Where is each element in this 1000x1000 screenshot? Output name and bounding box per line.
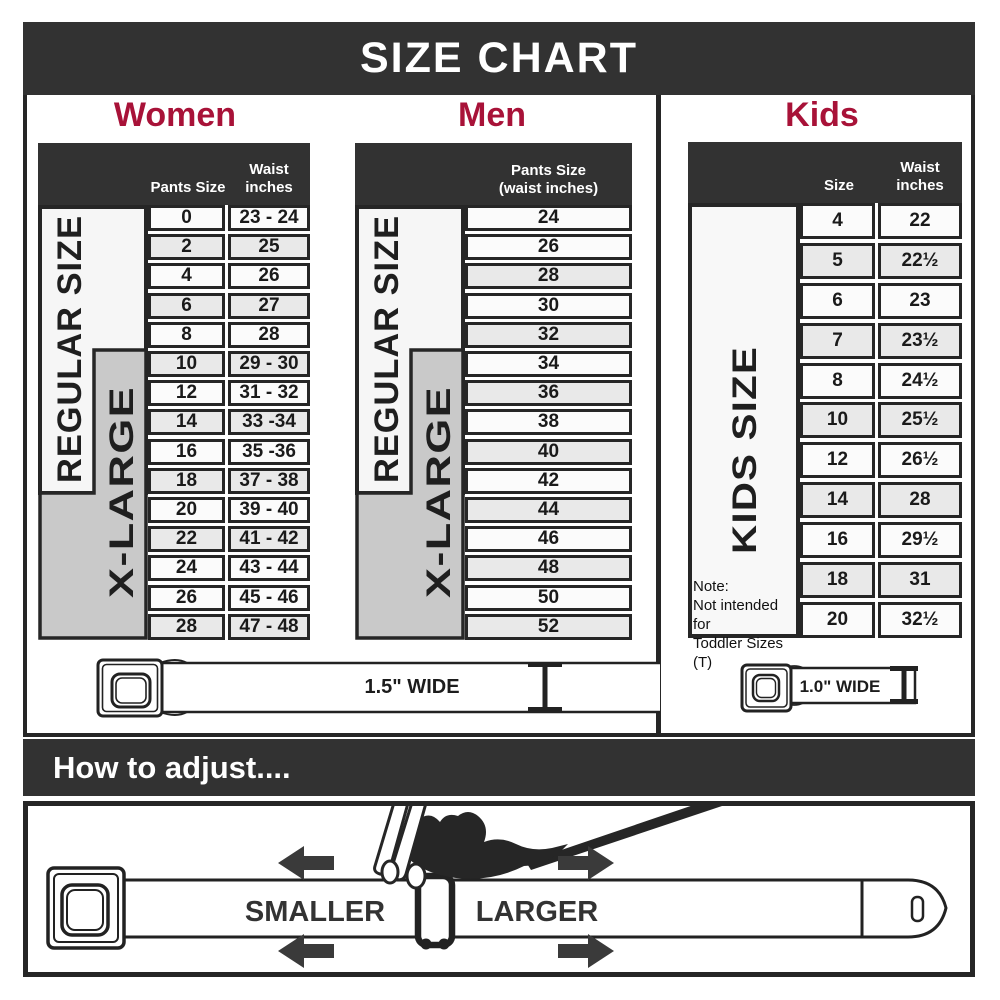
table-row: 225 [148,234,310,260]
table-cell: 0 [148,205,225,231]
men-header-line2: (waist inches) [465,180,632,199]
page-title: SIZE CHART [360,34,638,83]
table-cell: 22 [148,526,225,552]
table-cell: 40 [465,439,632,465]
men-heading: Men [392,96,592,135]
table-cell: 24 [148,555,225,581]
kids-size-label: KIDS SIZE [726,346,764,554]
table-cell: 26 [148,585,225,611]
table-cell: 35 -36 [228,439,310,465]
table-cell: 24½ [878,363,962,399]
table-cell: 20 [800,602,875,638]
table-row: 1025½ [800,402,962,438]
belt-adjuster-slider [418,876,452,950]
buckle-button-inner [757,679,776,698]
table-row: 52 [465,614,632,640]
table-cell: 34 [465,351,632,377]
table-cell: 38 [465,409,632,435]
table-row: 1433 -34 [148,409,310,435]
table-row: 1629½ [800,522,962,558]
table-row: 1635 -36 [148,439,310,465]
table-row: 44 [465,497,632,523]
table-cell: 14 [148,409,225,435]
waist-header-line1: Waist [228,161,310,180]
table-cell: 31 [878,562,962,598]
men-pants-size-column-header: Pants Size (waist inches) [465,162,632,200]
kids-size-table: 422522½623723½824½1025½1226½14281629½183… [800,203,962,638]
women-waist-column-header: Waist inches [228,161,310,199]
table-cell: 45 - 46 [228,585,310,611]
adult-belt-width-label: 1.5" WIDE [342,676,482,699]
table-row: 422 [800,203,962,239]
how-to-adjust-band: How to adjust.... [23,739,975,796]
larger-arrow-bottom [558,934,614,968]
table-cell: 8 [800,363,875,399]
table-cell: 12 [148,380,225,406]
table-row: 426 [148,263,310,289]
table-row: 623 [800,283,962,319]
table-cell: 26½ [878,442,962,478]
table-cell: 18 [800,562,875,598]
table-row: 30 [465,293,632,319]
kids-heading: Kids [722,96,922,135]
table-cell: 48 [465,555,632,581]
table-cell: 18 [148,468,225,494]
table-cell: 28 [148,614,225,640]
table-row: 32 [465,322,632,348]
buckle-button-inner [116,678,146,703]
belt-tip [862,880,946,937]
size-chart-poster: SIZE CHART Women Men Kids Pants Size Wai… [0,0,1000,1000]
table-cell: 29 - 30 [228,351,310,377]
table-row: 1837 - 38 [148,468,310,494]
men-table-header: Pants Size (waist inches) [355,143,632,205]
table-cell: 28 [228,322,310,348]
table-cell: 42 [465,468,632,494]
smaller-arrow-bottom [278,934,334,968]
table-cell: 44 [465,497,632,523]
table-cell: 4 [800,203,875,239]
table-row: 1226½ [800,442,962,478]
table-cell: 26 [465,234,632,260]
table-cell: 16 [148,439,225,465]
kids-size-column-header: Size [800,177,878,196]
larger-label: LARGER [462,896,612,929]
kids-belt-width-label: 1.0" WIDE [790,677,890,697]
table-cell: 22½ [878,243,962,279]
fingertip [407,864,425,888]
table-cell: 26 [228,263,310,289]
table-cell: 12 [800,442,875,478]
table-cell: 50 [465,585,632,611]
table-row: 2847 - 48 [148,614,310,640]
table-row: 1428 [800,482,962,518]
table-row: 50 [465,585,632,611]
table-cell: 5 [800,243,875,279]
table-row: 2645 - 46 [148,585,310,611]
table-cell: 52 [465,614,632,640]
women-regular-size-label: REGULAR SIZE [51,215,89,483]
women-size-range-graphic: REGULAR SIZE X-LARGE [38,205,148,640]
women-size-table: 023 - 242254266278281029 - 301231 - 3214… [148,205,310,640]
men-size-range-graphic: REGULAR SIZE X-LARGE [355,205,465,640]
table-cell: 24 [465,205,632,231]
table-cell: 32½ [878,602,962,638]
table-row: 2443 - 44 [148,555,310,581]
table-cell: 4 [148,263,225,289]
table-row: 2032½ [800,602,962,638]
table-cell: 2 [148,234,225,260]
women-heading: Women [75,96,275,135]
table-cell: 23 [878,283,962,319]
table-cell: 25½ [878,402,962,438]
men-kids-divider [656,95,661,735]
kids-waist-column-header: Waist inches [878,159,962,197]
table-cell: 46 [465,526,632,552]
waist-header-line1: Waist [878,159,962,178]
table-cell: 10 [800,402,875,438]
kids-note-line1: Not intended for [693,596,799,634]
fingertip [382,861,398,883]
table-cell: 14 [800,482,875,518]
table-row: 1831 [800,562,962,598]
table-row: 2241 - 42 [148,526,310,552]
table-cell: 25 [228,234,310,260]
women-table-header: Pants Size Waist inches [38,143,310,205]
table-row: 36 [465,380,632,406]
table-row: 828 [148,322,310,348]
waist-header-line2: inches [878,177,962,196]
table-cell: 20 [148,497,225,523]
table-cell: 6 [800,283,875,319]
table-row: 40 [465,439,632,465]
table-cell: 33 -34 [228,409,310,435]
table-cell: 29½ [878,522,962,558]
table-row: 34 [465,351,632,377]
table-row: 627 [148,293,310,319]
how-to-adjust-heading: How to adjust.... [23,750,291,786]
table-cell: 16 [800,522,875,558]
table-cell: 8 [148,322,225,348]
women-x-large-label: X-LARGE [103,386,141,598]
belt-tip-slot [912,897,923,921]
adjust-belt-illustration [28,806,970,972]
kids-size-range-graphic: KIDS SIZE [688,203,800,638]
table-row: 522½ [800,243,962,279]
buckle-button-inner [67,890,103,930]
table-row: 24 [465,205,632,231]
table-cell: 7 [800,323,875,359]
table-row: 2039 - 40 [148,497,310,523]
men-x-large-label: X-LARGE [420,386,458,598]
table-row: 46 [465,526,632,552]
table-cell: 23 - 24 [228,205,310,231]
table-cell: 27 [228,293,310,319]
table-cell: 23½ [878,323,962,359]
men-size-table: 242628303234363840424446485052 [465,205,632,640]
table-cell: 39 - 40 [228,497,310,523]
table-row: 38 [465,409,632,435]
waist-header-line2: inches [228,179,310,198]
table-cell: 41 - 42 [228,526,310,552]
table-row: 48 [465,555,632,581]
table-row: 723½ [800,323,962,359]
table-row: 28 [465,263,632,289]
table-cell: 31 - 32 [228,380,310,406]
men-regular-size-label: REGULAR SIZE [368,215,406,483]
table-cell: 36 [465,380,632,406]
table-cell: 47 - 48 [228,614,310,640]
table-row: 42 [465,468,632,494]
table-cell: 6 [148,293,225,319]
table-row: 1231 - 32 [148,380,310,406]
women-pants-size-column-header: Pants Size [148,179,228,198]
kids-note-title: Note: [693,577,799,596]
table-cell: 10 [148,351,225,377]
table-row: 1029 - 30 [148,351,310,377]
table-cell: 28 [878,482,962,518]
table-row: 26 [465,234,632,260]
table-cell: 43 - 44 [228,555,310,581]
table-cell: 30 [465,293,632,319]
table-cell: 37 - 38 [228,468,310,494]
table-cell: 22 [878,203,962,239]
table-cell: 28 [465,263,632,289]
table-cell: 32 [465,322,632,348]
smaller-arrow-top [278,846,334,880]
table-row: 023 - 24 [148,205,310,231]
men-header-line1: Pants Size [465,162,632,181]
smaller-label: SMALLER [240,896,390,929]
kids-table-header: Size Waist inches [688,142,962,203]
title-band: SIZE CHART [23,22,975,95]
table-row: 824½ [800,363,962,399]
